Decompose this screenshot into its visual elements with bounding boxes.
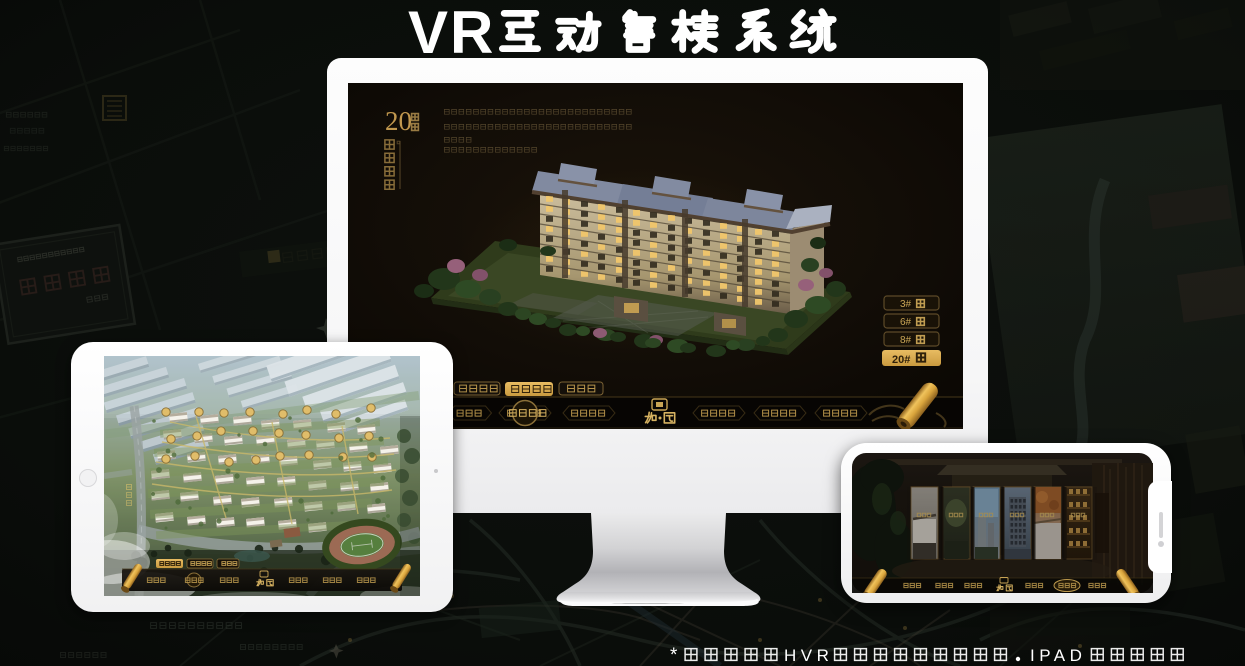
svg-text:20#: 20# (892, 354, 910, 366)
svg-text:6#: 6# (900, 317, 912, 328)
svg-text:20: 20 (385, 106, 412, 136)
svg-text:VR: VR (408, 0, 495, 64)
svg-text:3#: 3# (900, 299, 912, 310)
svg-text:8#: 8# (900, 335, 912, 346)
